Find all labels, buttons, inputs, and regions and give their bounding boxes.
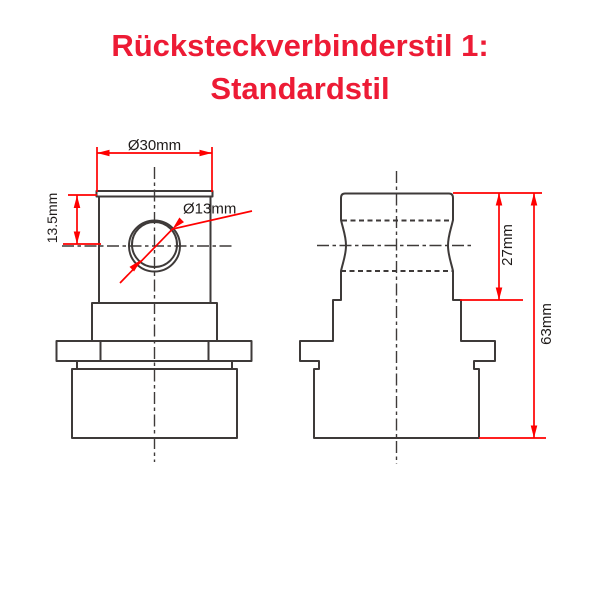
drawing-frame: Rücksteckverbinderstil 1: Standardstil [0,0,600,600]
arrow-width-right [200,150,213,157]
page: { "title": { "line1": "Rücksteckverbinde… [0,0,600,600]
centerlines [62,167,474,464]
technical-drawing: Ø30mm 13.5mm Ø13mm 27mm 63mm [0,0,600,600]
arrow-offset-bottom [74,232,81,245]
arrow-width-left [97,150,110,157]
side-profile-outline [300,194,495,439]
label-hole-diameter: Ø13mm [183,201,236,218]
dim-hole-diameter-leader [120,211,252,283]
dimension-labels: Ø30mm 13.5mm Ø13mm 27mm 63mm [44,137,555,345]
label-total-height: 63mm [538,303,555,345]
arrow-63-top [531,193,538,206]
part-outlines [57,191,496,438]
arrow-27-bottom [496,288,503,301]
label-outer-width: Ø30mm [128,137,181,154]
label-hole-offset: 13.5mm [44,193,60,244]
arrow-27-top [496,193,503,206]
label-upper-height: 27mm [499,224,516,266]
arrow-63-bottom [531,426,538,439]
arrow-offset-top [74,196,81,209]
